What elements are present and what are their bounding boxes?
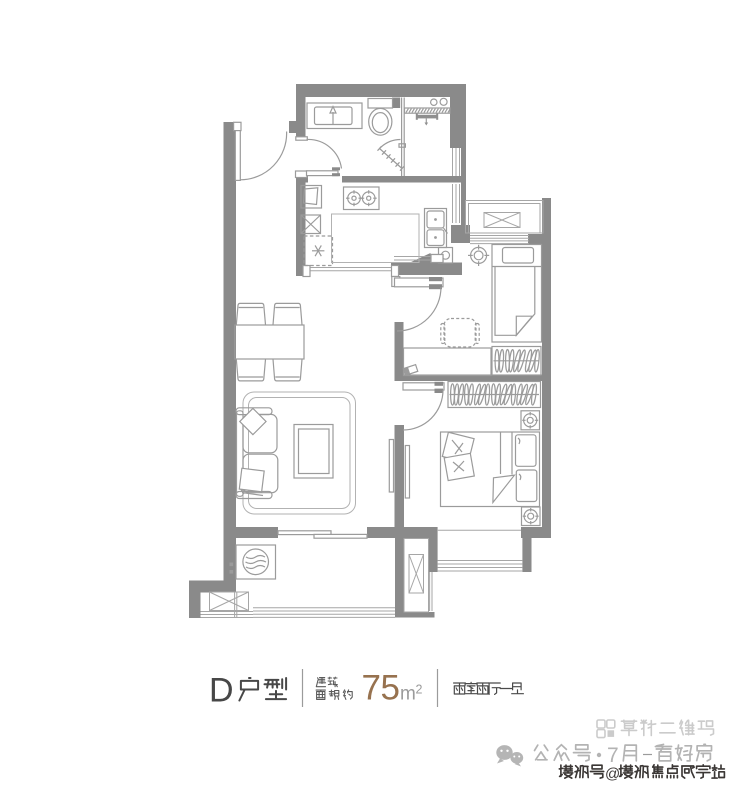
- svg-text:m: m: [400, 684, 416, 705]
- svg-text:2: 2: [416, 683, 423, 697]
- svg-text:7: 7: [607, 744, 619, 767]
- svg-text:D: D: [209, 672, 234, 710]
- svg-text:@: @: [605, 766, 620, 783]
- svg-text:75: 75: [362, 669, 400, 708]
